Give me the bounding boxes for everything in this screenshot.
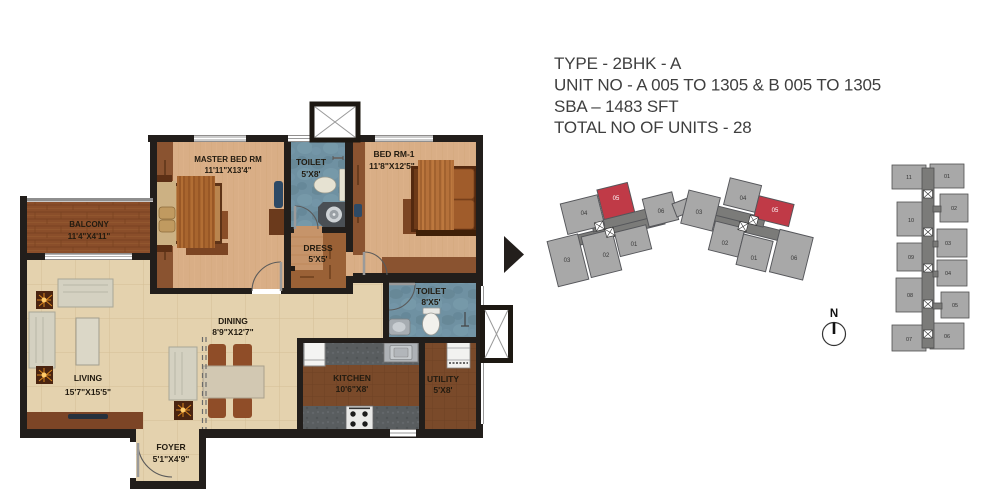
svg-text:02: 02 xyxy=(722,241,729,247)
svg-text:11'8"X12'5": 11'8"X12'5" xyxy=(369,161,415,171)
svg-text:01: 01 xyxy=(944,174,950,180)
svg-text:5'X8': 5'X8' xyxy=(301,169,320,179)
svg-text:5'1"X4'9": 5'1"X4'9" xyxy=(153,454,190,464)
svg-text:15'7"X15'5": 15'7"X15'5" xyxy=(65,387,111,397)
svg-text:07: 07 xyxy=(906,337,912,343)
svg-text:KITCHEN: KITCHEN xyxy=(333,373,371,383)
svg-text:11'11"X13'4": 11'11"X13'4" xyxy=(205,166,252,175)
svg-text:SBA – 1483 SFT: SBA – 1483 SFT xyxy=(554,97,679,116)
svg-text:03: 03 xyxy=(564,258,571,264)
svg-text:01: 01 xyxy=(751,256,758,262)
svg-text:TOTAL NO OF UNITS - 28: TOTAL NO OF UNITS - 28 xyxy=(554,118,752,137)
svg-text:05: 05 xyxy=(952,303,958,309)
svg-text:8'9"X12'7": 8'9"X12'7" xyxy=(212,327,253,337)
svg-text:04: 04 xyxy=(581,211,588,217)
svg-text:10'6"X8': 10'6"X8' xyxy=(336,384,369,394)
svg-text:09: 09 xyxy=(908,255,914,261)
svg-text:06: 06 xyxy=(791,256,798,262)
svg-text:TOILET: TOILET xyxy=(296,157,327,167)
svg-text:04: 04 xyxy=(740,196,747,202)
svg-text:MASTER BED RM: MASTER BED RM xyxy=(194,155,262,164)
svg-text:11'4"X4'11": 11'4"X4'11" xyxy=(68,232,111,241)
svg-text:5'X8': 5'X8' xyxy=(433,385,452,395)
svg-text:03: 03 xyxy=(945,241,951,247)
svg-text:04: 04 xyxy=(945,271,951,277)
svg-text:5'X5': 5'X5' xyxy=(308,254,327,264)
svg-text:06: 06 xyxy=(944,334,950,340)
svg-text:TOILET: TOILET xyxy=(416,286,447,296)
svg-text:N: N xyxy=(830,308,838,320)
svg-text:DRESS: DRESS xyxy=(303,243,333,253)
svg-text:LIVING: LIVING xyxy=(74,373,103,383)
svg-text:DINING: DINING xyxy=(218,316,248,326)
svg-text:06: 06 xyxy=(658,209,665,215)
svg-text:10: 10 xyxy=(908,218,914,224)
svg-text:05: 05 xyxy=(613,196,620,202)
svg-text:03: 03 xyxy=(696,210,703,216)
svg-text:UNIT NO - A 005 TO 1305 & B 00: UNIT NO - A 005 TO 1305 & B 005 TO 1305 xyxy=(554,76,881,95)
svg-text:08: 08 xyxy=(907,293,913,299)
svg-text:01: 01 xyxy=(631,242,638,248)
svg-text:TYPE - 2BHK - A: TYPE - 2BHK - A xyxy=(554,54,682,73)
svg-text:FOYER: FOYER xyxy=(156,442,185,452)
svg-text:BED RM-1: BED RM-1 xyxy=(373,149,414,159)
svg-text:UTILITY: UTILITY xyxy=(427,374,459,384)
svg-text:02: 02 xyxy=(951,206,957,212)
svg-text:8'X5': 8'X5' xyxy=(421,297,440,307)
svg-text:02: 02 xyxy=(603,253,610,259)
svg-text:11: 11 xyxy=(906,175,912,181)
svg-text:BALCONY: BALCONY xyxy=(69,220,109,229)
svg-text:05: 05 xyxy=(772,208,779,214)
